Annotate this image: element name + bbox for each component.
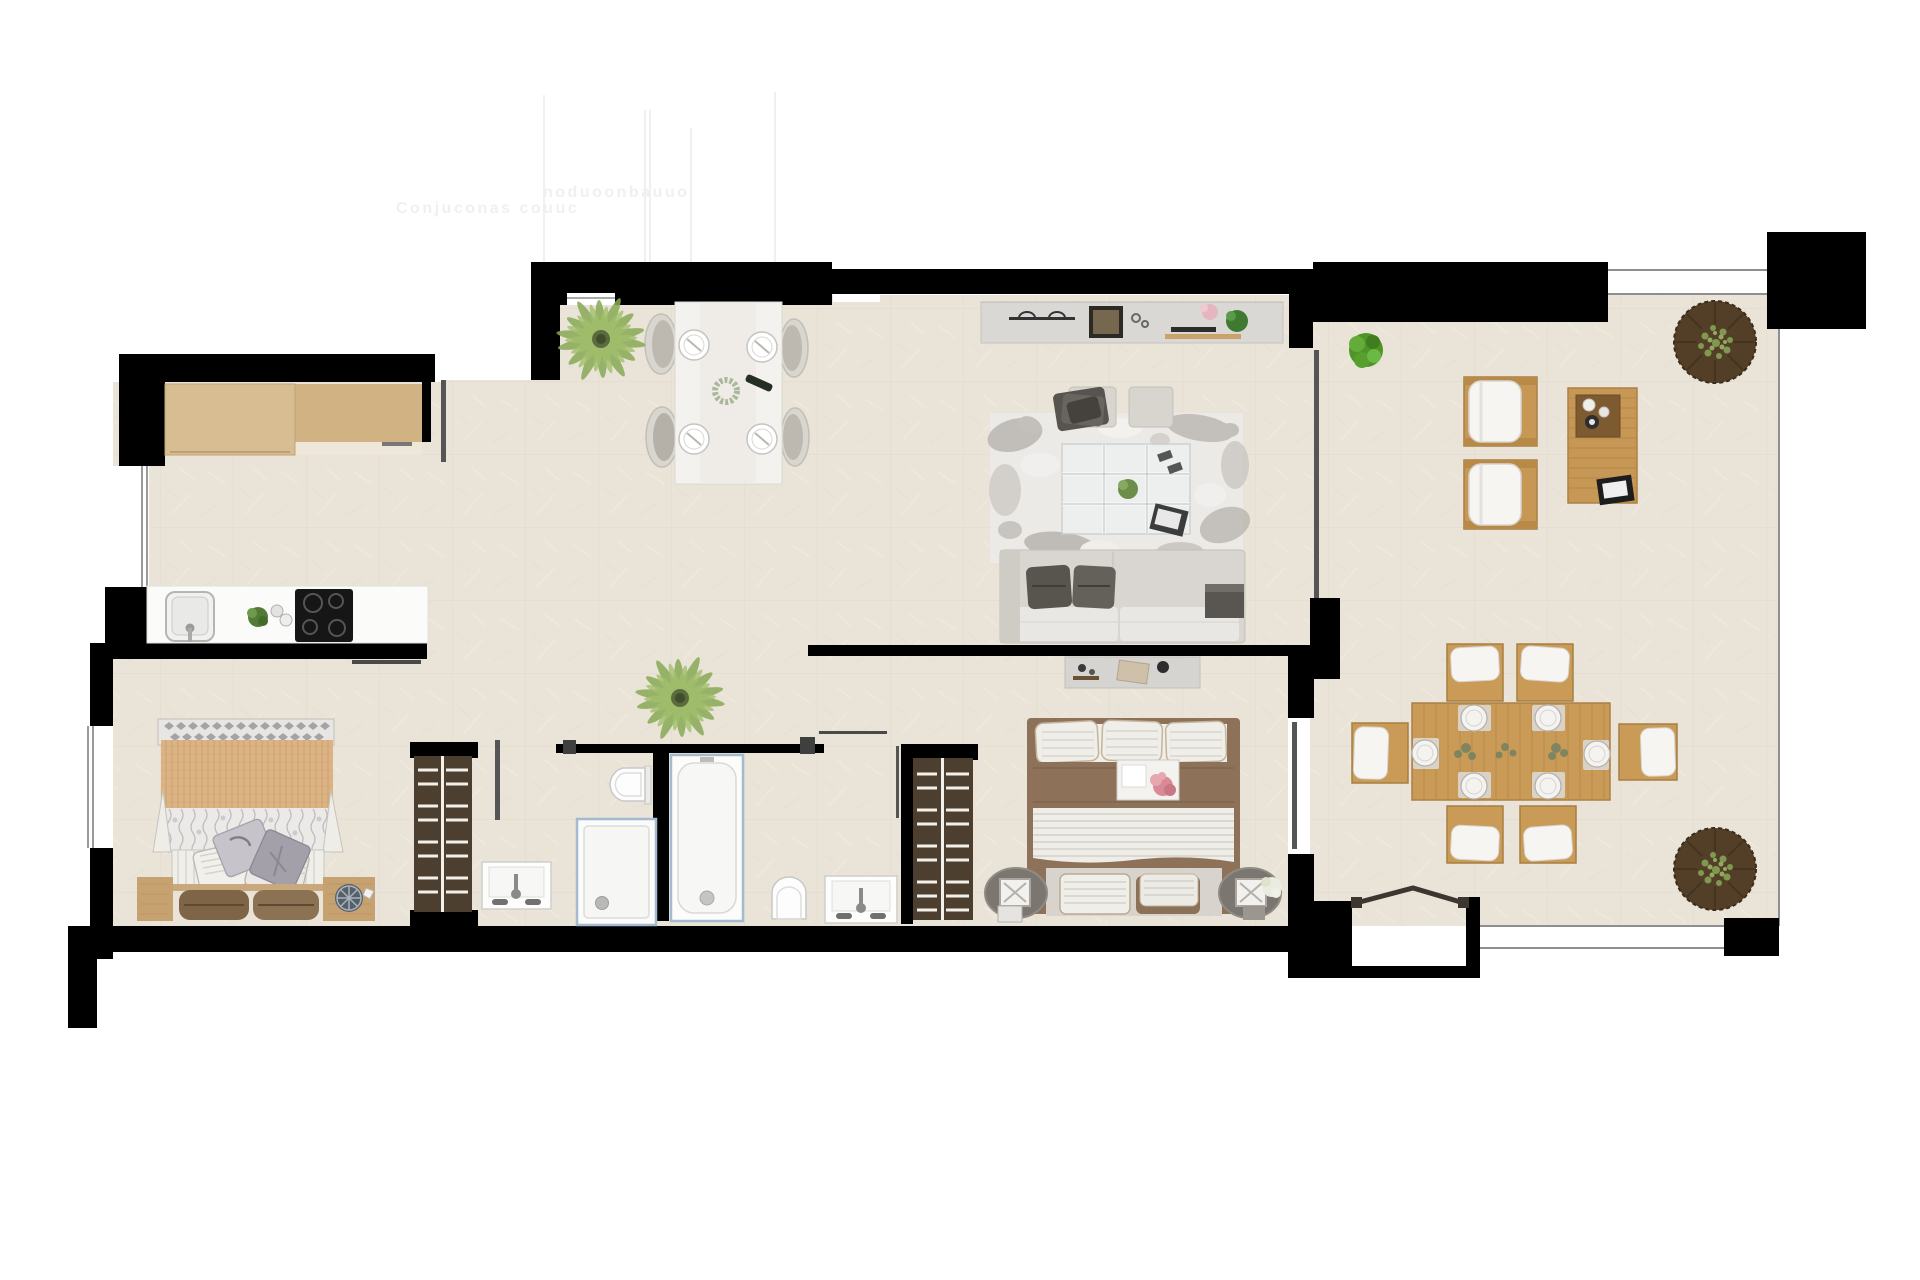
svg-text:Conjuconas couuc: Conjuconas couuc xyxy=(396,200,579,217)
svg-text:noduoonbauuo: noduoonbauuo xyxy=(543,184,689,201)
